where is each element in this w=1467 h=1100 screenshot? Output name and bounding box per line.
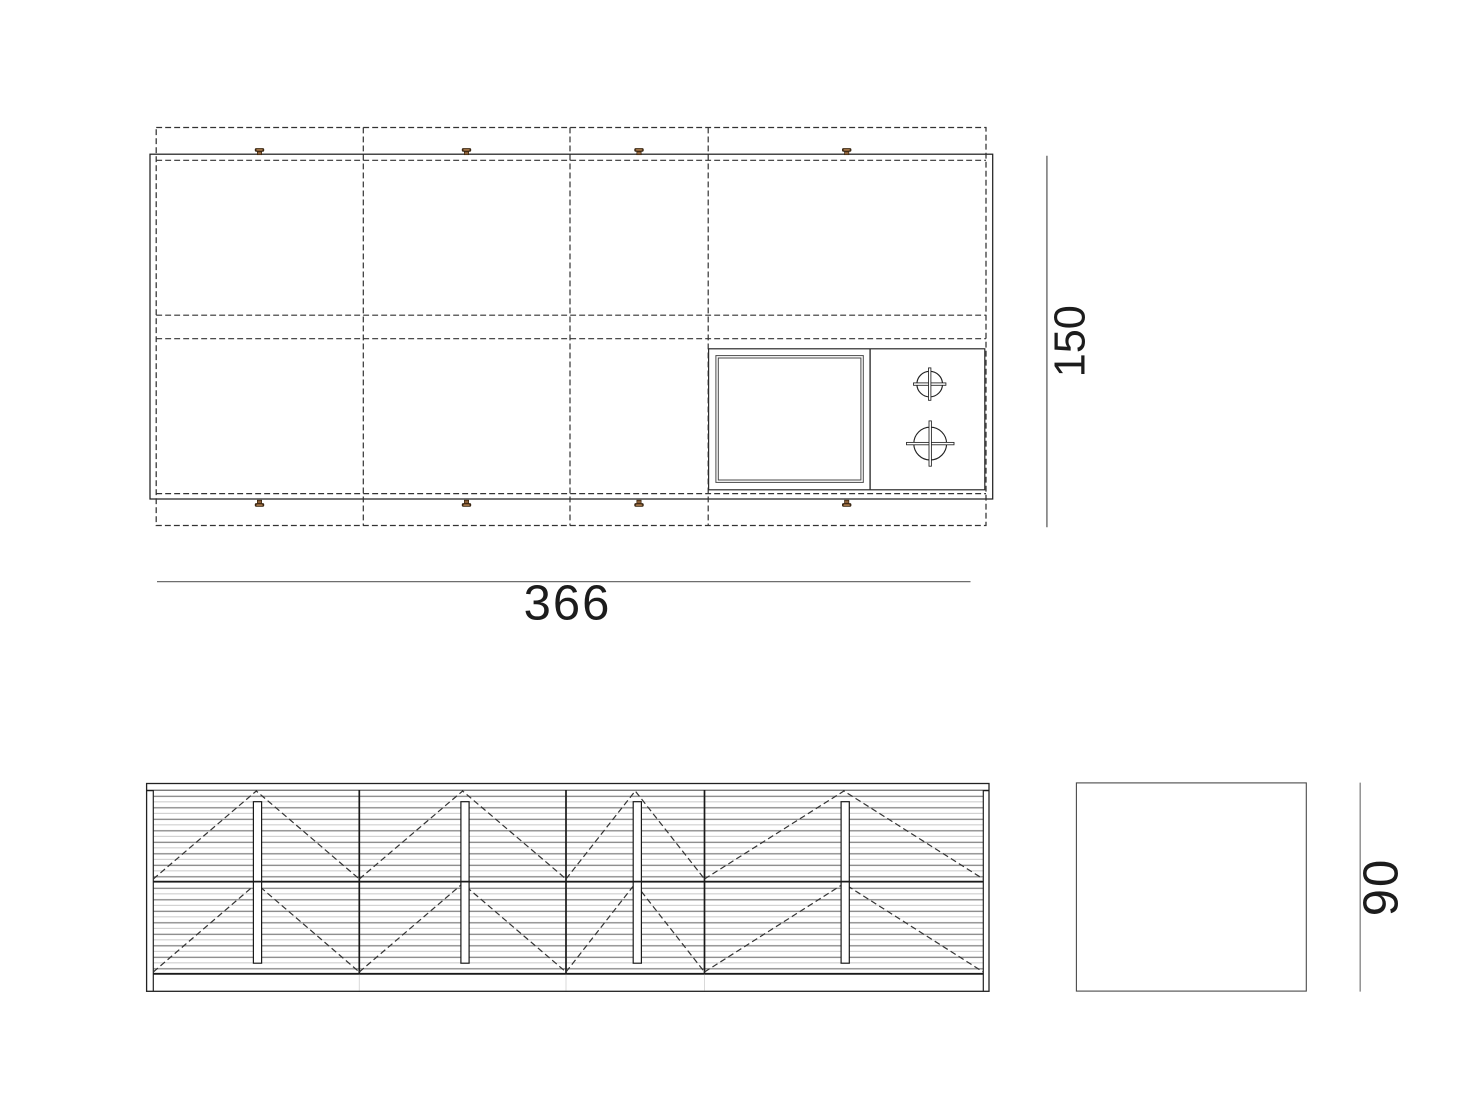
svg-text:366: 366 <box>524 577 612 631</box>
svg-text:150: 150 <box>1046 305 1094 377</box>
svg-text:90: 90 <box>1354 858 1408 917</box>
